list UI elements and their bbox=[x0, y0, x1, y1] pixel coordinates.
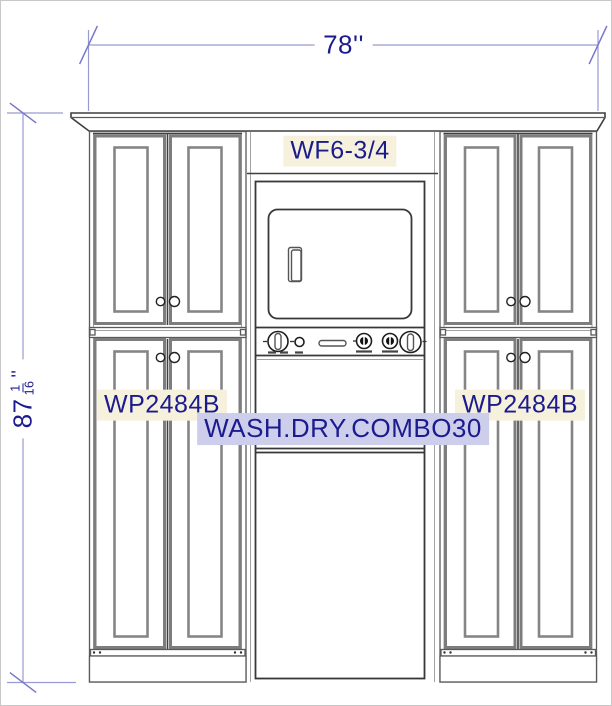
appliance-label: WASH.DRY.COMBO30 bbox=[197, 413, 489, 445]
elevation-drawing-canvas: 78'' 87 1 16 '' WF6-3/4 WP2484B WP2484B … bbox=[0, 0, 612, 706]
width-dimension-text: 78'' bbox=[314, 30, 373, 61]
height-dim-numerator: 1 bbox=[9, 383, 23, 392]
crown-molding bbox=[71, 113, 605, 131]
filler-label: WF6-3/4 bbox=[283, 136, 396, 167]
height-dim-fraction: 1 16 bbox=[9, 381, 36, 396]
height-dim-whole: 87 bbox=[8, 398, 39, 428]
height-dim-denominator: 16 bbox=[24, 381, 37, 396]
height-dimension-text: 87 1 16 '' bbox=[8, 360, 39, 439]
height-dim-unit: '' bbox=[9, 370, 30, 378]
detergent-slot bbox=[319, 341, 346, 347]
cabinet-elevation-svg bbox=[1, 1, 612, 706]
dryer-door-handle bbox=[289, 248, 302, 282]
